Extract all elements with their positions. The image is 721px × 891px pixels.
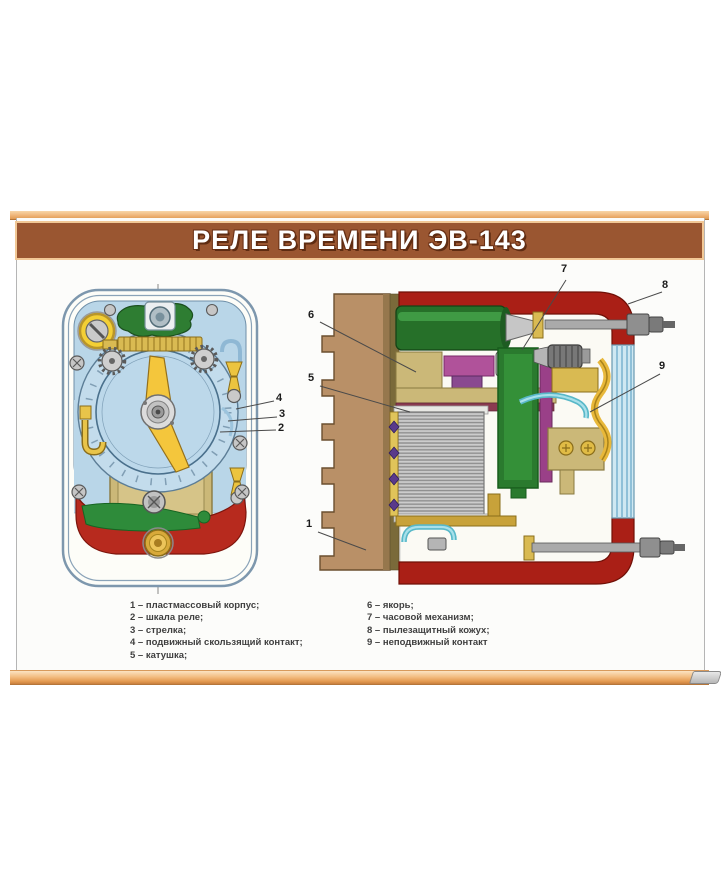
callout-5: 5 xyxy=(308,373,314,384)
legend-item: 3 – стрелка; xyxy=(130,625,365,637)
legend-item: 4 – подвижный скользящий контакт; xyxy=(130,637,365,649)
callout-7: 7 xyxy=(561,264,567,275)
legend-item: 1 – пластмассовый корпус; xyxy=(130,600,365,612)
legend-item: 7 – часовой механизм; xyxy=(367,612,587,624)
callout-3: 3 xyxy=(279,409,285,420)
poster-title: РЕЛЕ ВРЕМЕНИ ЭВ-143 xyxy=(192,225,527,256)
callout-1: 1 xyxy=(306,519,312,530)
legend-item: 2 – шкала реле; xyxy=(130,612,365,624)
legend-item: 8 – пылезащитный кожух; xyxy=(367,625,587,637)
legend-item: 5 – катушка; xyxy=(130,650,365,662)
poster-title-bar: РЕЛЕ ВРЕМЕНИ ЭВ-143 xyxy=(15,221,704,260)
callout-9: 9 xyxy=(659,361,665,372)
callout-4: 4 xyxy=(276,393,282,404)
legend-column-left: 1 – пластмассовый корпус; 2 – шкала реле… xyxy=(130,600,365,662)
poster-bottom-rail xyxy=(10,670,709,685)
legend-item: 9 – неподвижный контакт xyxy=(367,637,587,649)
legend-item: 6 – якорь; xyxy=(367,600,587,612)
rail-end-clip xyxy=(689,671,721,684)
callout-6: 6 xyxy=(308,310,314,321)
legend-column-right: 6 – якорь; 7 – часовой механизм; 8 – пыл… xyxy=(367,600,587,650)
callout-8: 8 xyxy=(662,280,668,291)
page-background: { "poster": { "title": "РЕЛЕ ВРЕМЕНИ ЭВ-… xyxy=(0,0,721,891)
callout-2: 2 xyxy=(278,423,284,434)
